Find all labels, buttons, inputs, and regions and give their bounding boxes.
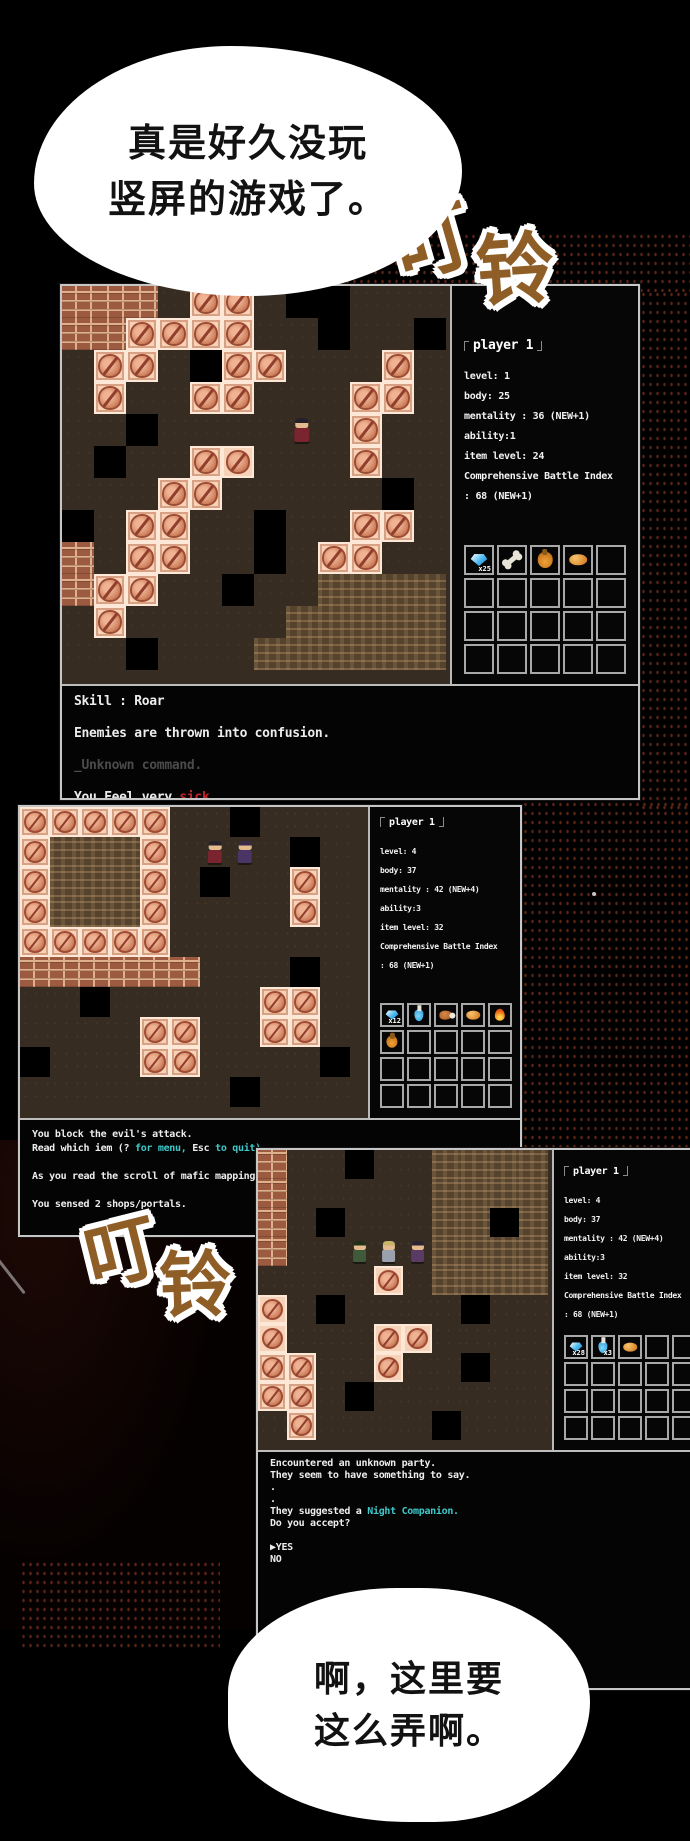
map-tile bbox=[110, 897, 140, 927]
map-tile bbox=[287, 1295, 316, 1324]
map-tile bbox=[222, 542, 254, 574]
map-tile bbox=[260, 867, 290, 897]
inventory-cell[interactable] bbox=[530, 578, 560, 608]
map-tile bbox=[222, 318, 254, 350]
inventory-cell[interactable] bbox=[596, 644, 626, 674]
map-tile bbox=[258, 1266, 287, 1295]
map-tile bbox=[260, 897, 290, 927]
text-line: ability:1 bbox=[464, 427, 626, 447]
stats-panel-3: player 1 level: 4body: 37mentality : 42 … bbox=[552, 1150, 690, 1450]
map-tile bbox=[94, 350, 126, 382]
map-tile bbox=[414, 638, 446, 670]
map-tile bbox=[254, 350, 286, 382]
map-tile bbox=[110, 927, 140, 957]
map-tile bbox=[254, 414, 286, 446]
inventory-cell[interactable] bbox=[434, 1003, 458, 1027]
map-tile bbox=[20, 1017, 50, 1047]
sfx-char: 铃 bbox=[472, 205, 558, 322]
map-tile bbox=[414, 446, 446, 478]
player-name: player 1 bbox=[564, 1166, 690, 1177]
bone-item-icon bbox=[505, 553, 519, 566]
map-tile bbox=[287, 1237, 316, 1266]
map-tile bbox=[230, 867, 260, 897]
map-tile bbox=[258, 1237, 287, 1266]
map-tile bbox=[230, 897, 260, 927]
inventory-cell[interactable]: x25 bbox=[464, 545, 494, 575]
map-tile bbox=[110, 957, 140, 987]
player-name: player 1 bbox=[464, 338, 626, 353]
map-tile bbox=[287, 1411, 316, 1440]
map-tile bbox=[20, 807, 50, 837]
map-tile bbox=[286, 510, 318, 542]
map-tile bbox=[519, 1208, 548, 1237]
map-tile bbox=[382, 606, 414, 638]
message-log-1: Skill : RoarEnemies are thrown into conf… bbox=[62, 684, 638, 798]
inventory-cell[interactable] bbox=[530, 611, 560, 641]
text-line: You Feel very sick. bbox=[74, 790, 626, 798]
map-tile bbox=[286, 542, 318, 574]
map-tile bbox=[80, 1077, 110, 1107]
map-tile bbox=[170, 957, 200, 987]
map-tile bbox=[320, 1047, 350, 1077]
inventory-cell[interactable] bbox=[488, 1057, 512, 1081]
map-tile bbox=[414, 350, 446, 382]
map-tile bbox=[80, 1017, 110, 1047]
map-tile bbox=[290, 1017, 320, 1047]
map-tile bbox=[403, 1295, 432, 1324]
inventory-cell[interactable]: x3 bbox=[591, 1335, 615, 1359]
inventory-cell[interactable] bbox=[407, 1030, 431, 1054]
map-tile bbox=[320, 867, 350, 897]
map-tile bbox=[230, 1077, 260, 1107]
map-tile bbox=[170, 867, 200, 897]
inventory-cell[interactable] bbox=[530, 545, 560, 575]
inventory-cell[interactable] bbox=[497, 578, 527, 608]
map-tile bbox=[519, 1324, 548, 1353]
map-tile bbox=[94, 318, 126, 350]
game-window-1: player 1 level: 1body: 25mentality : 36 … bbox=[60, 284, 640, 800]
map-tile bbox=[126, 574, 158, 606]
map-tile bbox=[461, 1237, 490, 1266]
map-tile bbox=[318, 542, 350, 574]
stat-lines: level: 4body: 37mentality : 42 (NEW+4)ab… bbox=[380, 842, 512, 975]
map-tile bbox=[230, 987, 260, 1017]
map-tile bbox=[254, 542, 286, 574]
map-tile bbox=[20, 1047, 50, 1077]
inventory-cell[interactable] bbox=[563, 578, 593, 608]
map-tile bbox=[318, 510, 350, 542]
fire-item-icon bbox=[495, 1009, 505, 1021]
inventory-cell[interactable] bbox=[488, 1003, 512, 1027]
text-line: level: 4 bbox=[380, 842, 512, 861]
map-tile bbox=[350, 478, 382, 510]
map-tile bbox=[126, 350, 158, 382]
map-tile bbox=[286, 606, 318, 638]
map-tile bbox=[519, 1266, 548, 1295]
map-tile bbox=[345, 1266, 374, 1295]
map-tile bbox=[403, 1411, 432, 1440]
map-tile bbox=[254, 574, 286, 606]
map-tile bbox=[62, 414, 94, 446]
map-tile bbox=[382, 574, 414, 606]
map-tile bbox=[170, 1077, 200, 1107]
stat-lines: level: 1body: 25mentality : 36 (NEW+1)ab… bbox=[464, 367, 626, 507]
inventory-cell[interactable]: x12 bbox=[380, 1003, 404, 1027]
text-line: : 68 (NEW+1) bbox=[564, 1305, 690, 1324]
inventory-cell[interactable] bbox=[672, 1389, 690, 1413]
map-tile bbox=[403, 1353, 432, 1382]
comic-page: 真是好久没玩 竖屏的游戏了。 叮铃 player 1 level: 1body:… bbox=[0, 0, 690, 1841]
map-tile bbox=[461, 1150, 490, 1179]
stat-lines: level: 4body: 37mentality : 42 (NEW+4)ab… bbox=[564, 1191, 690, 1324]
map-tile bbox=[62, 606, 94, 638]
text-line: Skill : Roar bbox=[74, 694, 626, 710]
map-tile bbox=[110, 1047, 140, 1077]
text-line: mentality : 36 (NEW+1) bbox=[464, 407, 626, 427]
map-tile bbox=[461, 1295, 490, 1324]
map-tile bbox=[403, 1208, 432, 1237]
map-tile bbox=[260, 837, 290, 867]
map-tile bbox=[260, 927, 290, 957]
inventory-cell[interactable] bbox=[618, 1362, 642, 1386]
map-tile bbox=[318, 478, 350, 510]
map-tile bbox=[403, 1179, 432, 1208]
map-tile bbox=[403, 1266, 432, 1295]
inventory-cell[interactable] bbox=[461, 1057, 485, 1081]
map-tile bbox=[382, 542, 414, 574]
inventory-cell[interactable] bbox=[645, 1416, 669, 1440]
map-tile bbox=[126, 606, 158, 638]
inventory-cell[interactable] bbox=[407, 1003, 431, 1027]
map-tile bbox=[170, 837, 200, 867]
map-tile bbox=[140, 837, 170, 867]
map-tile bbox=[158, 318, 190, 350]
map-tile bbox=[350, 606, 382, 638]
speech-text: 真是好久没玩 bbox=[128, 115, 368, 171]
inventory-cell[interactable] bbox=[461, 1030, 485, 1054]
inventory-cell[interactable] bbox=[618, 1335, 642, 1359]
map-tile bbox=[140, 1077, 170, 1107]
inventory-cell[interactable] bbox=[645, 1362, 669, 1386]
inventory-cell[interactable] bbox=[530, 644, 560, 674]
map-tile bbox=[382, 414, 414, 446]
inventory-cell[interactable] bbox=[618, 1389, 642, 1413]
inventory-cell[interactable] bbox=[407, 1057, 431, 1081]
map-tile bbox=[62, 318, 94, 350]
inventory-cell[interactable] bbox=[488, 1084, 512, 1108]
inventory-cell[interactable] bbox=[407, 1084, 431, 1108]
map-tile bbox=[190, 382, 222, 414]
map-tile bbox=[350, 446, 382, 478]
inventory-cell[interactable] bbox=[380, 1084, 404, 1108]
map-tile bbox=[80, 837, 110, 867]
map-tile bbox=[316, 1324, 345, 1353]
map-tile bbox=[158, 510, 190, 542]
map-tile bbox=[230, 1047, 260, 1077]
inventory-cell[interactable] bbox=[618, 1416, 642, 1440]
debris-dot bbox=[592, 892, 596, 896]
text-line: Comprehensive Battle Index bbox=[464, 467, 626, 487]
item-count-badge: x25 bbox=[478, 565, 491, 573]
text-line bbox=[74, 742, 626, 758]
inventory-cell[interactable] bbox=[563, 545, 593, 575]
map-tile bbox=[286, 478, 318, 510]
inventory-cell[interactable] bbox=[380, 1057, 404, 1081]
map-tile bbox=[170, 1047, 200, 1077]
map-tile bbox=[490, 1411, 519, 1440]
map-tile bbox=[94, 574, 126, 606]
map-tile bbox=[350, 350, 382, 382]
map-tile bbox=[258, 1382, 287, 1411]
map-tile bbox=[110, 987, 140, 1017]
map-tile bbox=[50, 1047, 80, 1077]
map-tile bbox=[254, 606, 286, 638]
text-line bbox=[74, 774, 626, 790]
inventory-cell[interactable] bbox=[497, 545, 527, 575]
map-tile bbox=[126, 446, 158, 478]
map-tile bbox=[286, 382, 318, 414]
bread-item-icon bbox=[569, 554, 587, 565]
inventory-cell[interactable] bbox=[564, 1389, 588, 1413]
map-tile bbox=[318, 318, 350, 350]
text-line: Comprehensive Battle Index bbox=[380, 937, 512, 956]
map-tile bbox=[374, 1324, 403, 1353]
text-line: level: 4 bbox=[564, 1191, 690, 1210]
map-tile bbox=[490, 1150, 519, 1179]
map-tile bbox=[158, 638, 190, 670]
sfx-char: 叮 bbox=[72, 1187, 167, 1306]
inventory-cell[interactable] bbox=[564, 1416, 588, 1440]
map-tile bbox=[290, 867, 320, 897]
inventory-cell[interactable] bbox=[591, 1416, 615, 1440]
map-tile bbox=[432, 1208, 461, 1237]
map-tile bbox=[94, 446, 126, 478]
map-tile bbox=[490, 1179, 519, 1208]
map-tile bbox=[350, 382, 382, 414]
map-tile bbox=[158, 446, 190, 478]
map-tile bbox=[80, 987, 110, 1017]
map-tile bbox=[94, 382, 126, 414]
map-tile bbox=[414, 606, 446, 638]
inventory-cell[interactable] bbox=[591, 1362, 615, 1386]
background-texture-bottom bbox=[20, 1560, 220, 1650]
map-tile bbox=[62, 446, 94, 478]
inventory-cell[interactable] bbox=[596, 611, 626, 641]
map-tile bbox=[461, 1266, 490, 1295]
map-tile bbox=[140, 1047, 170, 1077]
text-line: mentality : 42 (NEW+4) bbox=[380, 880, 512, 899]
map-tile bbox=[350, 574, 382, 606]
inventory-cell[interactable] bbox=[596, 578, 626, 608]
map-tile bbox=[374, 1295, 403, 1324]
map-tile bbox=[286, 318, 318, 350]
inventory-grid-3: x28x3 bbox=[564, 1335, 690, 1440]
map-tile bbox=[350, 638, 382, 670]
map-tile bbox=[260, 987, 290, 1017]
map-tile bbox=[432, 1150, 461, 1179]
map-tile bbox=[382, 446, 414, 478]
map-tile bbox=[350, 510, 382, 542]
map-tile bbox=[50, 807, 80, 837]
map-tile bbox=[222, 350, 254, 382]
inventory-cell[interactable] bbox=[461, 1084, 485, 1108]
map-tile bbox=[490, 1382, 519, 1411]
map-tile bbox=[222, 478, 254, 510]
inventory-cell[interactable]: x28 bbox=[564, 1335, 588, 1359]
map-tile bbox=[190, 446, 222, 478]
text-line: body: 25 bbox=[464, 387, 626, 407]
map-tile bbox=[345, 1295, 374, 1324]
map-tile bbox=[414, 510, 446, 542]
inventory-cell[interactable] bbox=[497, 644, 527, 674]
map-tile bbox=[286, 638, 318, 670]
map-tile bbox=[158, 350, 190, 382]
map-tile bbox=[110, 807, 140, 837]
map-tile bbox=[403, 1150, 432, 1179]
inventory-cell[interactable] bbox=[645, 1389, 669, 1413]
inventory-cell[interactable] bbox=[497, 611, 527, 641]
map-tile bbox=[290, 927, 320, 957]
character-sprite bbox=[374, 1237, 403, 1266]
text-line: You block the evil's attack. bbox=[32, 1128, 508, 1142]
map-tile bbox=[345, 1411, 374, 1440]
inventory-cell[interactable] bbox=[672, 1335, 690, 1359]
text-line: Comprehensive Battle Index bbox=[564, 1286, 690, 1305]
inventory-cell[interactable] bbox=[564, 1362, 588, 1386]
item-count-badge: x28 bbox=[572, 1349, 585, 1357]
map-tile bbox=[126, 510, 158, 542]
map-tile bbox=[94, 638, 126, 670]
map-tile bbox=[287, 1353, 316, 1382]
item-count-badge: x12 bbox=[388, 1017, 401, 1025]
map-tile bbox=[190, 574, 222, 606]
map-tile bbox=[222, 382, 254, 414]
map-tile bbox=[432, 1324, 461, 1353]
map-tile bbox=[320, 927, 350, 957]
map-tile bbox=[287, 1179, 316, 1208]
map-tile bbox=[320, 837, 350, 867]
map-tile bbox=[316, 1411, 345, 1440]
map-tile bbox=[286, 574, 318, 606]
text-line: body: 37 bbox=[564, 1210, 690, 1229]
inventory-cell[interactable] bbox=[645, 1335, 669, 1359]
text-line: ability:3 bbox=[380, 899, 512, 918]
map-tile bbox=[258, 1208, 287, 1237]
map-tile bbox=[200, 867, 230, 897]
map-tile bbox=[414, 382, 446, 414]
text-line: ability:3 bbox=[564, 1248, 690, 1267]
map-tile bbox=[258, 1324, 287, 1353]
map-tile bbox=[318, 350, 350, 382]
inventory-cell[interactable] bbox=[434, 1057, 458, 1081]
map-tile bbox=[62, 286, 94, 318]
map-tile bbox=[230, 807, 260, 837]
bread-item-icon bbox=[466, 1011, 480, 1020]
map-tile bbox=[190, 510, 222, 542]
map-tile bbox=[258, 1295, 287, 1324]
inventory-cell[interactable] bbox=[672, 1362, 690, 1386]
map-tile bbox=[94, 510, 126, 542]
inventory-cell[interactable] bbox=[672, 1416, 690, 1440]
map-tile bbox=[350, 286, 382, 318]
game-viewport: player 1 level: 4body: 37mentality : 42 … bbox=[258, 1150, 690, 1450]
inventory-cell[interactable] bbox=[434, 1084, 458, 1108]
map-tile bbox=[287, 1324, 316, 1353]
map-tile bbox=[432, 1237, 461, 1266]
text-line: . bbox=[270, 1494, 690, 1506]
character-sprite bbox=[230, 837, 260, 867]
text-line: NO bbox=[270, 1554, 690, 1566]
map-tile bbox=[158, 542, 190, 574]
bag-item-icon bbox=[386, 1036, 397, 1048]
speech-text: 竖屏的游戏了。 bbox=[108, 171, 388, 227]
map-tile bbox=[287, 1150, 316, 1179]
map-tile bbox=[50, 837, 80, 867]
inventory-cell[interactable] bbox=[563, 644, 593, 674]
inventory-cell[interactable] bbox=[488, 1030, 512, 1054]
map-tile bbox=[126, 478, 158, 510]
inventory-cell[interactable] bbox=[464, 611, 494, 641]
map-tile bbox=[170, 897, 200, 927]
map-tile bbox=[80, 807, 110, 837]
map-tile bbox=[490, 1295, 519, 1324]
character-sprite bbox=[286, 414, 318, 446]
map-tile bbox=[519, 1382, 548, 1411]
inventory-cell[interactable] bbox=[461, 1003, 485, 1027]
text-line: Encountered an unknown party. bbox=[270, 1458, 690, 1470]
map-tile bbox=[222, 510, 254, 542]
map-tile bbox=[374, 1150, 403, 1179]
map-tile bbox=[290, 807, 320, 837]
text-line: item level: 32 bbox=[380, 918, 512, 937]
inventory-cell[interactable] bbox=[563, 611, 593, 641]
inventory-cell[interactable] bbox=[596, 545, 626, 575]
map-tile bbox=[316, 1353, 345, 1382]
map-tile bbox=[345, 1150, 374, 1179]
inventory-cell[interactable] bbox=[464, 644, 494, 674]
map-tile bbox=[260, 1047, 290, 1077]
text-line: : 68 (NEW+1) bbox=[464, 487, 626, 507]
map-tile bbox=[140, 867, 170, 897]
dungeon-map-3 bbox=[258, 1150, 552, 1450]
map-tile bbox=[258, 1179, 287, 1208]
map-tile bbox=[318, 446, 350, 478]
inventory-cell[interactable] bbox=[464, 578, 494, 608]
inventory-cell[interactable] bbox=[434, 1030, 458, 1054]
map-tile bbox=[287, 1266, 316, 1295]
map-tile bbox=[345, 1208, 374, 1237]
map-tile bbox=[190, 478, 222, 510]
map-tile bbox=[490, 1237, 519, 1266]
game-viewport: player 1 level: 1body: 25mentality : 36 … bbox=[62, 286, 638, 684]
map-tile bbox=[432, 1382, 461, 1411]
potion-item-icon bbox=[414, 1009, 423, 1021]
map-tile bbox=[222, 446, 254, 478]
map-tile bbox=[190, 414, 222, 446]
map-tile bbox=[254, 478, 286, 510]
map-tile bbox=[94, 478, 126, 510]
map-tile bbox=[140, 987, 170, 1017]
map-tile bbox=[345, 1179, 374, 1208]
map-tile bbox=[374, 1179, 403, 1208]
inventory-cell[interactable] bbox=[591, 1389, 615, 1413]
map-tile bbox=[258, 1150, 287, 1179]
map-tile bbox=[490, 1266, 519, 1295]
inventory-cell[interactable] bbox=[380, 1030, 404, 1054]
map-tile bbox=[20, 957, 50, 987]
map-tile bbox=[519, 1295, 548, 1324]
map-tile bbox=[126, 542, 158, 574]
